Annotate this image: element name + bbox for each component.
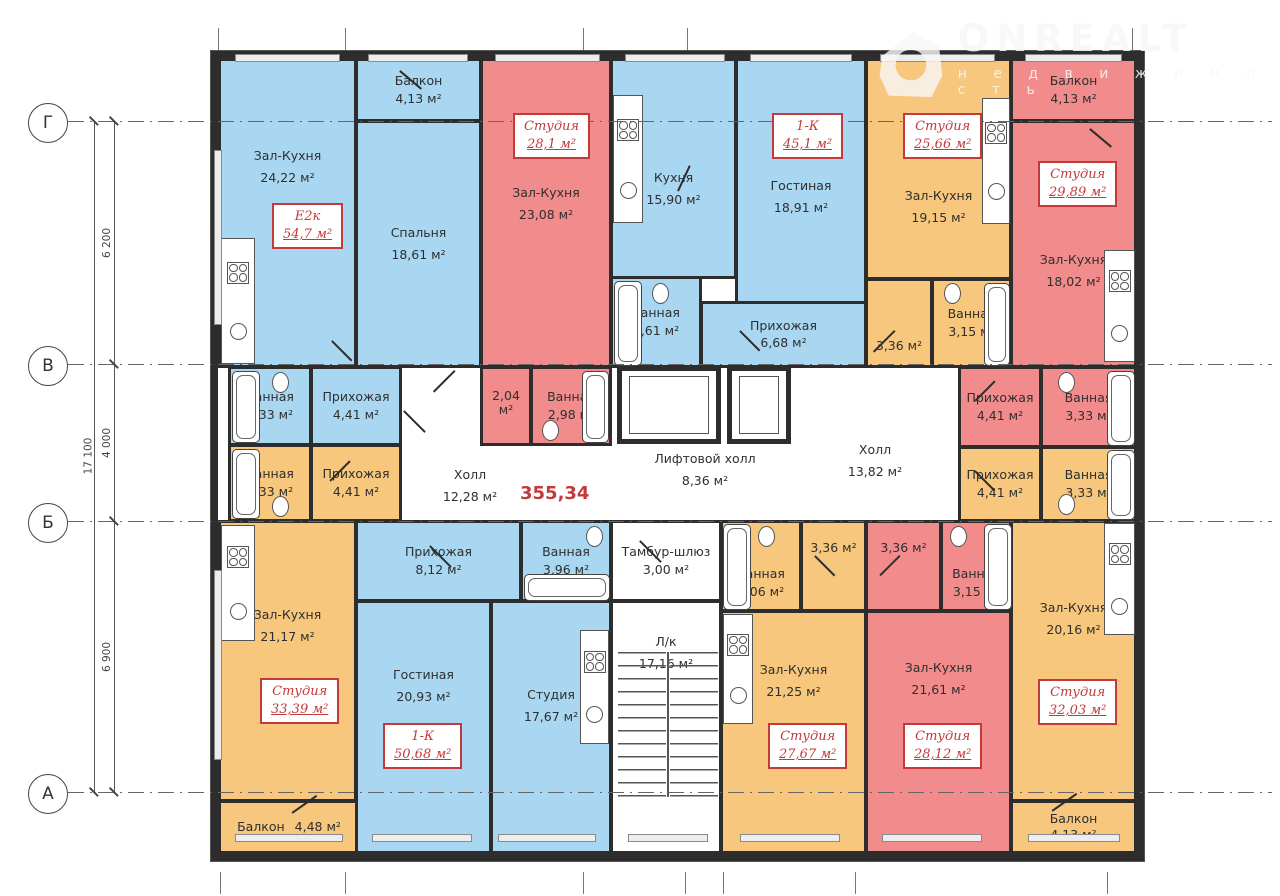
toilet-icon [758,526,775,547]
window [1028,834,1120,842]
grid-tick [345,872,346,894]
room-area: 20,93 м² [396,690,450,704]
grid-tick [1107,872,1108,894]
room-area: 4,41 м² [333,485,379,499]
room-area: 2,04 м² [483,389,529,418]
room-balcony-1: Балкон 4,13 м² [355,58,482,122]
axis-line-v [68,364,1272,365]
room-label: Зал-Кухня [905,661,973,675]
stove-icon [1109,543,1131,565]
stove-icon [1109,270,1131,292]
kitchen-sink-icon [1111,325,1128,342]
axis-letter: В [42,356,54,376]
axis-bubble-g: Г [28,103,68,143]
bathtub-icon [232,449,260,519]
room-area: 19,15 м² [911,211,965,225]
window [235,834,343,842]
grid-tick [583,28,584,50]
stairs-icon [670,652,718,797]
kitchen-counter [723,614,753,724]
window [750,54,852,62]
stairs-divider [667,652,669,797]
toilet-icon [1058,372,1075,393]
dim-value-ba: 6 900 [101,642,113,672]
kitchen-counter [1104,523,1135,635]
bathtub-icon [1107,371,1135,446]
elevator-icon [617,366,721,444]
room-area: 15,90 м² [646,193,700,207]
room-label: Зал-Кухня [1040,601,1108,615]
window [498,834,596,842]
unit-area: 45,1 м² [783,137,832,152]
room-area: 3,00 м² [643,563,689,577]
window [214,150,222,325]
room-entry-6: Прихожая 4,41 м² [310,444,402,522]
room-label: Ванная [1065,468,1113,482]
unit-code: Студия [915,729,970,744]
room-area: 17,67 м² [524,710,578,724]
dim-value-total: 17 100 [82,438,94,475]
dim-value-vb: 4 000 [101,428,113,458]
toilet-icon [944,283,961,304]
room-area: 4,41 м² [333,408,379,422]
unit-code: 1-К [796,119,819,134]
kitchen-counter [221,525,255,641]
kitchen-counter [580,630,609,744]
dimension-line-segments [114,121,115,793]
unit-area: 25,66 м² [914,137,971,152]
toilet-icon [542,420,559,441]
window [882,834,982,842]
unit-code: Е2к [295,209,321,224]
unit-area: 28,12 м² [914,747,971,762]
room-area: 21,25 м² [766,685,820,699]
unit-code: Студия [524,119,579,134]
room-label: Гостиная [393,668,454,682]
corridor-hall-right: Холл 13,82 м² [815,443,935,480]
bathtub-icon [614,281,642,366]
kitchen-counter [221,238,255,364]
grid-tick [723,872,724,894]
unit-box-studio-2812: Студия 28,12 м² [903,723,982,769]
room-entry-3: Прихожая 6,68 м² [700,301,867,368]
window [625,54,725,62]
room-entry-5: Прихожая 4,41 м² [958,366,1042,448]
room-area: 4,41 м² [977,409,1023,423]
kitchen-sink-icon [620,182,637,199]
unit-area: 50,68 м² [394,747,451,762]
room-entry-1: Прихожая 4,41 м² [310,366,402,446]
room-area: 18,02 м² [1046,275,1100,289]
room-balcony-5: Балкон 4,13 м² [1010,58,1137,122]
room-area: 24,22 м² [260,171,314,185]
room-small-9: 3,36 м² [865,520,942,612]
total-floor-area: 355,34 [520,483,589,504]
room-label: Холл [859,443,891,457]
bathtub-icon [723,524,751,610]
kitchen-sink-icon [586,706,603,723]
unit-code: Студия [272,684,327,699]
unit-code: Студия [1050,167,1105,182]
toilet-icon [272,372,289,393]
room-label: Балкон [237,820,285,834]
unit-area: 33,39 м² [271,702,328,717]
kitchen-sink-icon [230,323,247,340]
stove-icon [227,262,249,284]
kitchen-sink-icon [1111,598,1128,615]
room-area: 12,28 м² [443,490,497,504]
room-area: 13,82 м² [848,465,902,479]
unit-box-studio-3339: Студия 33,39 м² [260,678,339,724]
room-label: Балкон [1050,74,1098,88]
room-area: 23,08 м² [519,208,573,222]
room-area: 21,17 м² [260,630,314,644]
dim-value-gv: 6 200 [101,228,113,258]
kitchen-sink-icon [988,183,1005,200]
room-label: Балкон [1050,812,1098,826]
window [368,54,468,62]
stove-icon [727,634,749,656]
unit-area: 29,89 м² [1049,185,1106,200]
room-label: Ванная [542,545,590,559]
unit-code: Студия [915,119,970,134]
window [214,570,222,760]
kitchen-sink-icon [230,603,247,620]
elevator-icon [727,366,791,444]
axis-letter: Б [42,513,54,533]
room-label: Тамбур-шлюз [622,545,711,559]
unit-box-1k-50: 1-К 50,68 м² [383,723,462,769]
room-area: 21,61 м² [911,683,965,697]
stove-icon [617,119,639,141]
room-area: 4,13 м² [1050,92,1096,106]
unit-area: 28,1 м² [524,137,579,152]
room-small-2: 2,04 м² [480,366,532,446]
bathtub-icon [1107,450,1135,520]
unit-box-studio-2767: Студия 27,67 м² [768,723,847,769]
toilet-icon [272,496,289,517]
toilet-icon [652,283,669,304]
axis-line-a [68,792,1272,793]
room-small-4: 3,36 м² [865,278,933,368]
room-area: 8,12 м² [415,563,461,577]
unit-box-e2k: Е2к 54,7 м² [272,203,343,249]
room-area: 3,33 м² [1065,409,1111,423]
kitchen-counter [1104,250,1135,362]
toilet-icon [1058,494,1075,515]
room-entry-10: Прихожая 4,41 м² [958,446,1042,522]
room-label: Зал-Кухня [760,663,828,677]
room-label: Спальня [391,226,447,240]
unit-code: 1-К [411,729,434,744]
room-area: 3,36 м² [810,541,856,555]
bathtub-icon [524,574,610,601]
room-label: Прихожая [750,319,817,333]
bathtub-icon [984,283,1010,366]
axis-bubble-v: В [28,346,68,386]
axis-bubble-a: А [28,774,68,814]
room-balcony-6: Балкон 4,48 м² [218,800,360,854]
room-area: 6,68 м² [760,336,806,350]
stairs-icon [618,652,666,797]
window [495,54,600,62]
bathtub-icon [984,524,1012,610]
window [880,54,995,62]
unit-box-studio-2989: Студия 29,89 м² [1038,161,1117,207]
corridor-lift-hall: Лифтовой холл 8,36 м² [630,452,780,489]
room-label: Л/к [655,635,676,649]
grid-tick [220,872,221,894]
window [372,834,472,842]
kitchen-counter [613,95,643,223]
room-label: Холл [454,468,486,482]
room-label: Зал-Кухня [512,186,580,200]
room-label: Прихожая [323,390,390,404]
room-balcony-10: Балкон 4,13 м² [1010,800,1137,854]
room-label: Студия [527,688,575,702]
room-label: Ванная [1065,391,1113,405]
room-area: 4,13 м² [395,92,441,106]
room-label: Зал-Кухня [254,608,322,622]
room-area: 18,91 м² [774,201,828,215]
room-area: 20,16 м² [1046,623,1100,637]
grid-tick [1132,28,1133,50]
unit-code: Студия [780,729,835,744]
room-hall-kitchen-2: Зал-Кухня 23,08 м² [480,58,612,368]
kitchen-counter [982,98,1010,224]
room-area: 18,61 м² [391,248,445,262]
unit-area: 32,03 м² [1049,703,1106,718]
unit-box-studio-28: Студия 28,1 м² [513,113,590,159]
room-area: 3,36 м² [880,541,926,555]
grid-tick [687,28,688,50]
window [235,54,340,62]
axis-line-g [68,121,1272,122]
grid-tick [583,872,584,894]
room-living-3: Гостиная 18,91 м² [735,58,867,304]
bathtub-icon [582,371,609,443]
room-area: 4,48 м² [295,820,341,834]
room-entry-7: Прихожая 8,12 м² [355,520,522,602]
room-small-8: 3,36 м² [800,520,867,612]
corridor-hall-left: Холл 12,28 м² [405,468,535,505]
stove-icon [985,122,1007,144]
room-area: 4,41 м² [977,486,1023,500]
room-area: 8,36 м² [682,474,728,488]
room-label: Лифтовой холл [654,452,755,466]
toilet-icon [586,526,603,547]
unit-area: 54,7 м² [283,227,332,242]
toilet-icon [950,526,967,547]
floor-plan: Зал-Кухня 24,22 м² Балкон 4,13 м² Спальн… [0,0,1280,896]
grid-tick [218,28,219,50]
axis-line-b [68,521,1272,522]
room-bedroom-1: Спальня 18,61 м² [355,120,482,368]
room-label: Зал-Кухня [1040,253,1108,267]
kitchen-sink-icon [730,687,747,704]
axis-bubble-b: Б [28,503,68,543]
axis-letter: А [42,784,54,804]
stove-icon [584,651,606,673]
grid-tick [855,872,856,894]
grid-tick [345,28,346,50]
unit-box-studio-3203: Студия 32,03 м² [1038,679,1117,725]
room-label: Зал-Кухня [254,149,322,163]
unit-box-studio-2566: Студия 25,66 м² [903,113,982,159]
axis-letter: Г [43,113,53,133]
grid-tick [685,872,686,894]
window [628,834,708,842]
unit-code: Студия [1050,685,1105,700]
room-label: Гостиная [771,179,832,193]
unit-box-1k-45: 1-К 45,1 м² [772,113,843,159]
window [740,834,840,842]
stove-icon [227,546,249,568]
room-label: Зал-Кухня [905,189,973,203]
bathtub-icon [232,371,260,443]
room-tambour: Тамбур-шлюз 3,00 м² [610,520,722,602]
unit-area: 27,67 м² [779,747,836,762]
window [1025,54,1122,62]
